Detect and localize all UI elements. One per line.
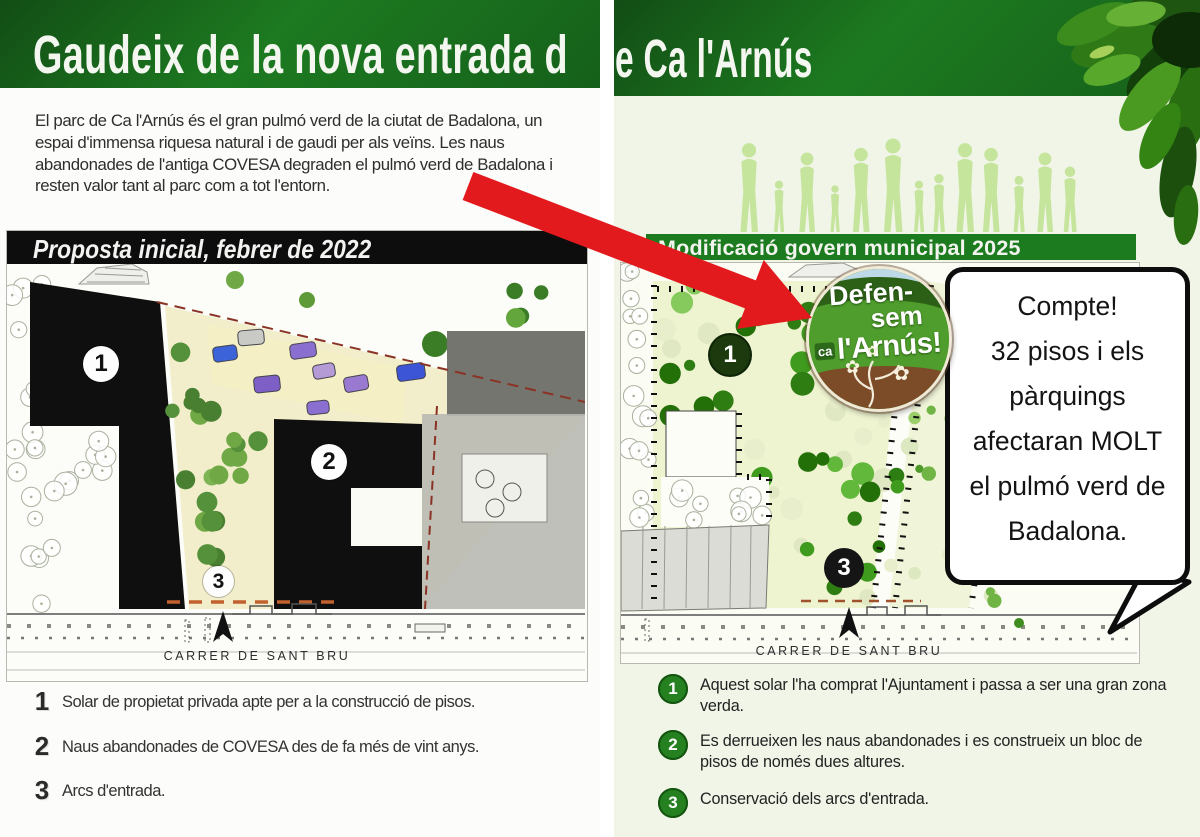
north-arrow-icon: [839, 607, 859, 641]
map-marker-3: 3: [203, 566, 234, 597]
legend-num: 1: [22, 688, 62, 714]
bubble-line: afectaran MOLT: [950, 419, 1185, 464]
legend-text: Solar de propietat privada apte per a la…: [62, 688, 475, 712]
legend-item: 3 Arcs d'entrada.: [22, 777, 582, 803]
bubble-line: pàrquings: [950, 374, 1185, 419]
flower-icon: ✿: [893, 361, 910, 386]
bubble-line: 32 pisos i els: [950, 329, 1185, 374]
map-marker-1: 1: [83, 346, 119, 382]
bubble-line: el pulmó verd de: [950, 464, 1185, 509]
page-title-right: e Ca l'Arnús: [615, 28, 813, 90]
legend-num-badge: 3: [658, 788, 688, 818]
street-label-left: CARRER DE SANT BRU: [147, 649, 367, 663]
leaves-image: [1000, 0, 1200, 245]
left-flyer-panel: Gaudeix de la nova entrada d El parc de …: [0, 0, 600, 837]
legend-text: Es derrueixen les naus abandonades i es …: [688, 730, 1170, 773]
north-arrow-icon: [213, 611, 233, 645]
right-flyer-panel: e Ca l'Arnús: [614, 0, 1200, 837]
flower-icon: ✿: [867, 343, 878, 359]
legend-text: Arcs d'entrada.: [62, 777, 165, 801]
legend-num-badge: 1: [658, 674, 688, 704]
map-marker-2: 2: [311, 444, 347, 480]
legend-text: Naus abandonades de COVESA des de fa més…: [62, 733, 479, 757]
page-title-left: Gaudeix de la nova entrada d: [33, 24, 568, 86]
legend-num-badge: 2: [658, 730, 688, 760]
legend-item: 1 Aquest solar l'ha comprat l'Ajuntament…: [658, 674, 1170, 717]
legend-item: 1 Solar de propietat privada apte per a …: [22, 688, 582, 714]
street-label-right: CARRER DE SANT BRU: [739, 644, 959, 658]
left-map-banner-label: Proposta inicial, febrer de 2022: [33, 234, 371, 265]
legend-text: Conservació dels arcs d'entrada.: [688, 788, 1170, 810]
legend-num: 3: [22, 777, 62, 803]
flower-icon: ✿: [845, 357, 860, 378]
legend-item: 2 Naus abandonades de COVESA des de fa m…: [22, 733, 582, 759]
annotation-arrow-icon: [440, 150, 840, 350]
legend-num: 2: [22, 733, 62, 759]
bubble-line: Compte!: [950, 284, 1185, 329]
legend-item: 2 Es derrueixen les naus abandonades i e…: [658, 730, 1170, 773]
legend-item: 3 Conservació dels arcs d'entrada.: [658, 788, 1170, 818]
left-title-banner: Gaudeix de la nova entrada d: [0, 0, 600, 88]
speech-bubble: Compte! 32 pisos i els pàrquings afectar…: [945, 267, 1190, 585]
map-marker-3: 3: [824, 548, 864, 588]
bubble-line: Badalona.: [950, 509, 1185, 554]
legend-text: Aquest solar l'ha comprat l'Ajuntament i…: [688, 674, 1170, 717]
flyer-comparison: Gaudeix de la nova entrada d El parc de …: [0, 0, 1200, 837]
